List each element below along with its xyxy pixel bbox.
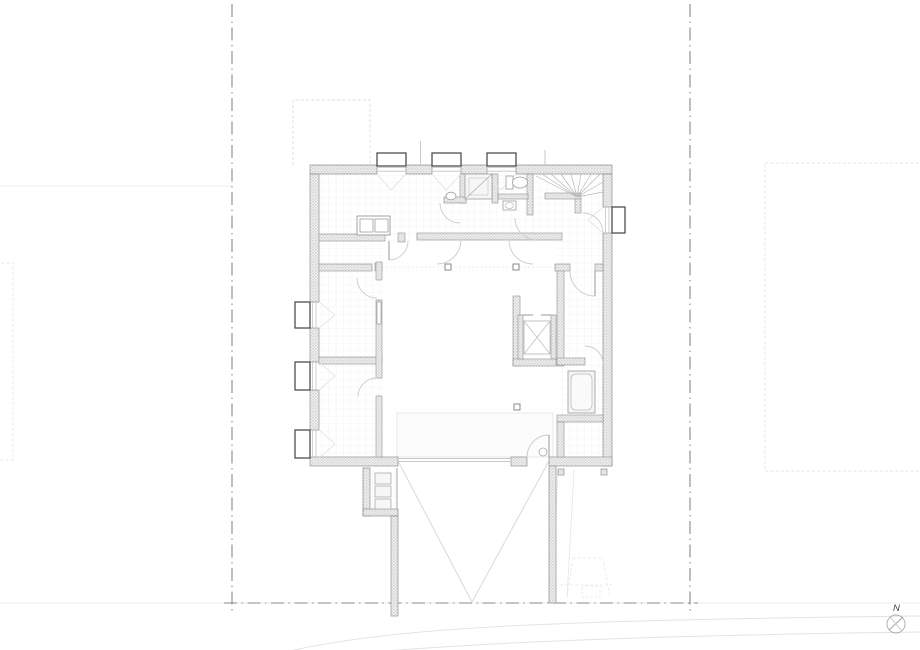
north-arrow: N <box>887 603 905 633</box>
wash-basin-2 <box>503 201 516 210</box>
neighbor-outline-top-left <box>293 100 370 165</box>
window-bay-top-1 <box>377 153 406 166</box>
window-bay-top-2 <box>432 153 461 166</box>
garden-wall-stub-left <box>391 516 398 616</box>
window-bay-top-3 <box>487 153 516 166</box>
window-bay-left-2 <box>295 362 310 390</box>
floor-drain <box>539 448 547 456</box>
window-bay-right-1 <box>612 207 625 233</box>
column-1 <box>445 264 451 270</box>
ramp-marking <box>398 461 549 602</box>
canopy-post-1 <box>558 469 564 475</box>
column-3 <box>514 404 520 410</box>
floor-plan-canvas: N <box>0 0 920 650</box>
window-bay-left-3 <box>295 430 310 458</box>
bathtub <box>568 371 595 413</box>
door-leaf-closed <box>377 302 381 324</box>
shower <box>465 174 492 199</box>
garden-wall-stub-right <box>549 466 556 603</box>
annex-wall-bottom <box>363 509 398 516</box>
wash-basin-1 <box>446 192 456 200</box>
toilet <box>506 176 528 189</box>
elevator <box>523 315 551 354</box>
north-label: N <box>893 603 900 614</box>
kitchen-unit <box>357 216 390 235</box>
floor-plan-drawing: N <box>0 0 920 650</box>
stair-newel-wall-return <box>575 199 581 213</box>
canopy-post-2 <box>601 469 607 475</box>
neighbor-outline-right <box>765 163 920 471</box>
window-bay-left-1 <box>295 302 310 328</box>
neighbor-outline-left <box>0 263 13 460</box>
thin-wall-lines <box>397 459 511 510</box>
parking-marking <box>552 470 612 598</box>
void-outline <box>397 413 553 457</box>
column-2 <box>513 264 519 270</box>
meter-cabinets <box>375 473 391 509</box>
road-edge-curves <box>285 616 920 650</box>
elevator-wall-bottom <box>513 359 556 366</box>
